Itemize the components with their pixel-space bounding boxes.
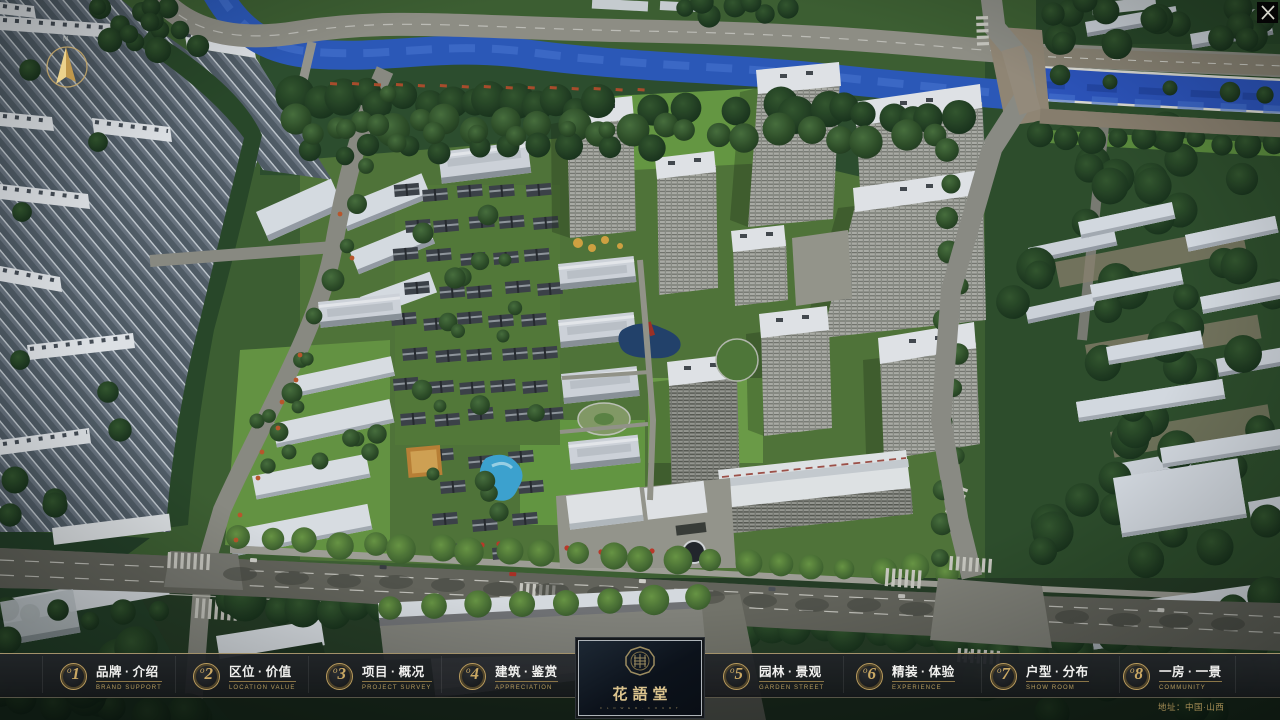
svg-text:N: N bbox=[63, 36, 68, 43]
